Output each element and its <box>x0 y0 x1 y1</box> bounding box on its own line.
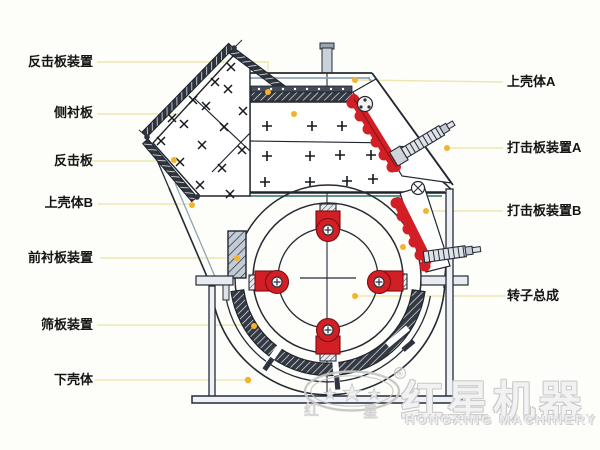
label-lower-casing: 下壳体 <box>54 372 93 388</box>
impact-crusher-diagram-page: ★ ★ ★ ® 红 星 红星机器 HONGXING MACHINERY 反击板装… <box>0 0 600 450</box>
label-front-liner-assembly: 前衬板装置 <box>28 250 93 266</box>
watermark-brand-en: HONGXING MACHINERY <box>405 412 597 427</box>
watermark-cn-char-left: 红 <box>304 399 319 420</box>
label-blow-bar-assembly-b: 打击板装置B <box>507 203 581 219</box>
star-icon: ★ <box>323 386 336 403</box>
label-upper-casing-b: 上壳体B <box>45 195 93 211</box>
label-screen-plate-assembly: 筛板装置 <box>41 317 93 333</box>
star-icon: ★ <box>341 380 363 407</box>
label-impact-plate: 反击板 <box>54 153 93 169</box>
watermark-cn-char-right: 星 <box>363 401 378 422</box>
label-blow-bar-assembly-a: 打击板装置A <box>507 140 581 156</box>
label-rotor-assembly: 转子总成 <box>507 288 559 304</box>
label-upper-casing-a: 上壳体A <box>507 74 555 90</box>
label-impact-plate-assembly: 反击板装置 <box>28 54 93 70</box>
label-side-liner: 侧衬板 <box>54 105 93 121</box>
